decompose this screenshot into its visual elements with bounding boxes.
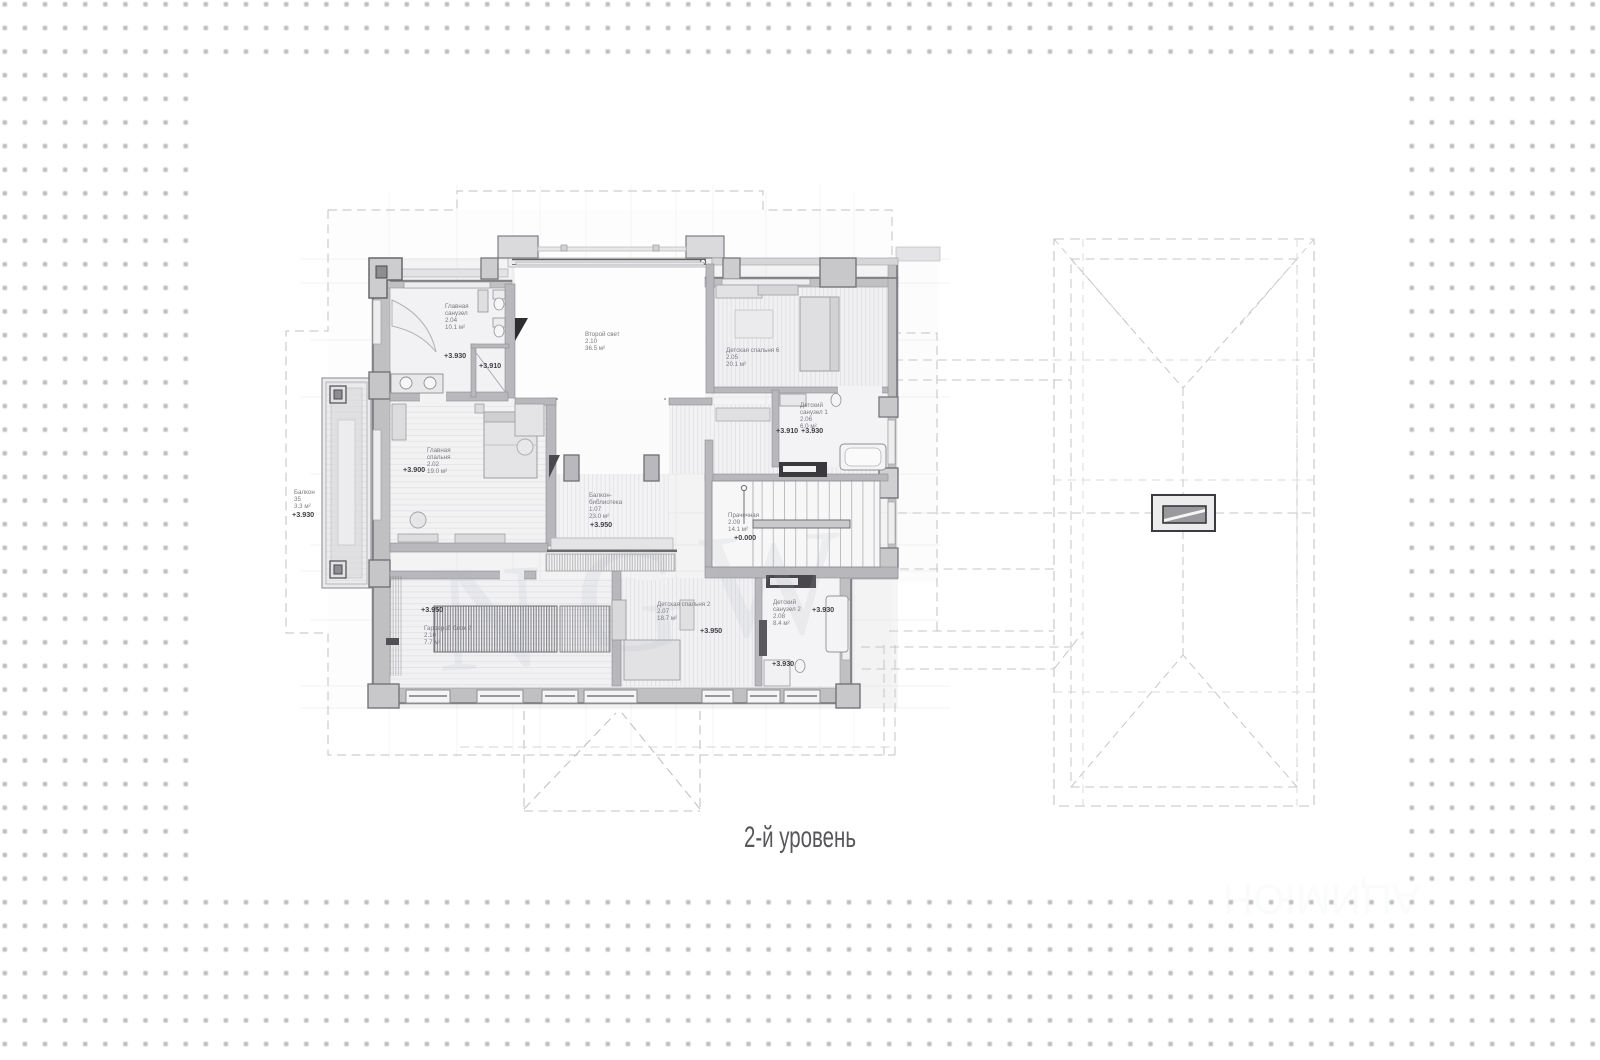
- svg-text:Детская спальня 6: Детская спальня 6: [726, 347, 780, 354]
- svg-text:+3.930: +3.930: [801, 426, 823, 435]
- svg-text:+3.900: +3.900: [403, 465, 425, 474]
- svg-text:+3.950: +3.950: [590, 520, 612, 529]
- svg-text:+3.950: +3.950: [700, 626, 722, 635]
- svg-text:+0.000: +0.000: [734, 533, 756, 542]
- svg-text:Детская спальня 2: Детская спальня 2: [657, 601, 711, 608]
- svg-text:23.0 м²: 23.0 м²: [589, 513, 609, 520]
- svg-text:2.10: 2.10: [585, 338, 598, 345]
- svg-text:2.07: 2.07: [657, 608, 670, 615]
- svg-text:2.06: 2.06: [800, 416, 813, 423]
- svg-text:2.02: 2.02: [427, 461, 440, 468]
- svg-text:Детский: Детский: [800, 402, 823, 409]
- svg-text:2-й уровень: 2-й уровень: [744, 821, 856, 854]
- svg-text:1.07: 1.07: [589, 506, 602, 513]
- svg-text:14.1 м²: 14.1 м²: [728, 526, 748, 533]
- svg-text:санузел 1: санузел 1: [800, 409, 828, 416]
- svg-text:+3.910: +3.910: [479, 361, 501, 370]
- svg-text:2.05: 2.05: [726, 354, 739, 361]
- svg-text:10.1 м²: 10.1 м²: [445, 324, 465, 331]
- svg-text:Детский: Детский: [773, 599, 796, 606]
- svg-text:+3.930: +3.930: [812, 605, 834, 614]
- svg-text:санузел: санузел: [445, 310, 468, 317]
- svg-text:санузел 2: санузел 2: [773, 606, 801, 613]
- svg-text:18.7 м²: 18.7 м²: [657, 615, 677, 622]
- svg-text:8.4 м²: 8.4 м²: [773, 620, 790, 627]
- svg-text:АЦИМЮН: АЦИМЮН: [1223, 876, 1420, 923]
- svg-text:+3.910: +3.910: [776, 426, 798, 435]
- svg-text:+3.930: +3.930: [772, 659, 794, 668]
- svg-text:Второй свет: Второй свет: [585, 331, 620, 338]
- svg-text:Прачечная: Прачечная: [728, 512, 759, 519]
- svg-text:20.1 м²: 20.1 м²: [726, 361, 746, 368]
- svg-text:36.5 м²: 36.5 м²: [585, 345, 605, 352]
- svg-text:+3.930: +3.930: [292, 510, 314, 519]
- svg-text:2.10: 2.10: [424, 632, 437, 639]
- svg-text:7.7 м²: 7.7 м²: [424, 639, 441, 646]
- svg-text:спальня: спальня: [427, 454, 451, 461]
- svg-text:Главная: Главная: [445, 303, 469, 310]
- svg-text:2.08: 2.08: [773, 613, 786, 620]
- svg-text:35: 35: [294, 496, 301, 503]
- svg-text:Балкон-: Балкон-: [589, 492, 612, 499]
- svg-text:библиотека: библиотека: [589, 499, 623, 506]
- svg-text:+3.930: +3.930: [444, 351, 466, 360]
- svg-text:Гардероб блок 2: Гардероб блок 2: [424, 625, 472, 632]
- svg-text:+3.950: +3.950: [421, 605, 443, 614]
- svg-text:N: N: [431, 532, 548, 703]
- svg-text:W: W: [696, 498, 846, 671]
- svg-text:Главная: Главная: [427, 447, 451, 454]
- svg-text:2.04: 2.04: [445, 317, 458, 324]
- svg-text:2.09: 2.09: [728, 519, 741, 526]
- svg-text:3.3 м²: 3.3 м²: [294, 503, 311, 510]
- svg-text:19.0 м²: 19.0 м²: [427, 468, 447, 475]
- svg-text:Балкон: Балкон: [294, 489, 315, 496]
